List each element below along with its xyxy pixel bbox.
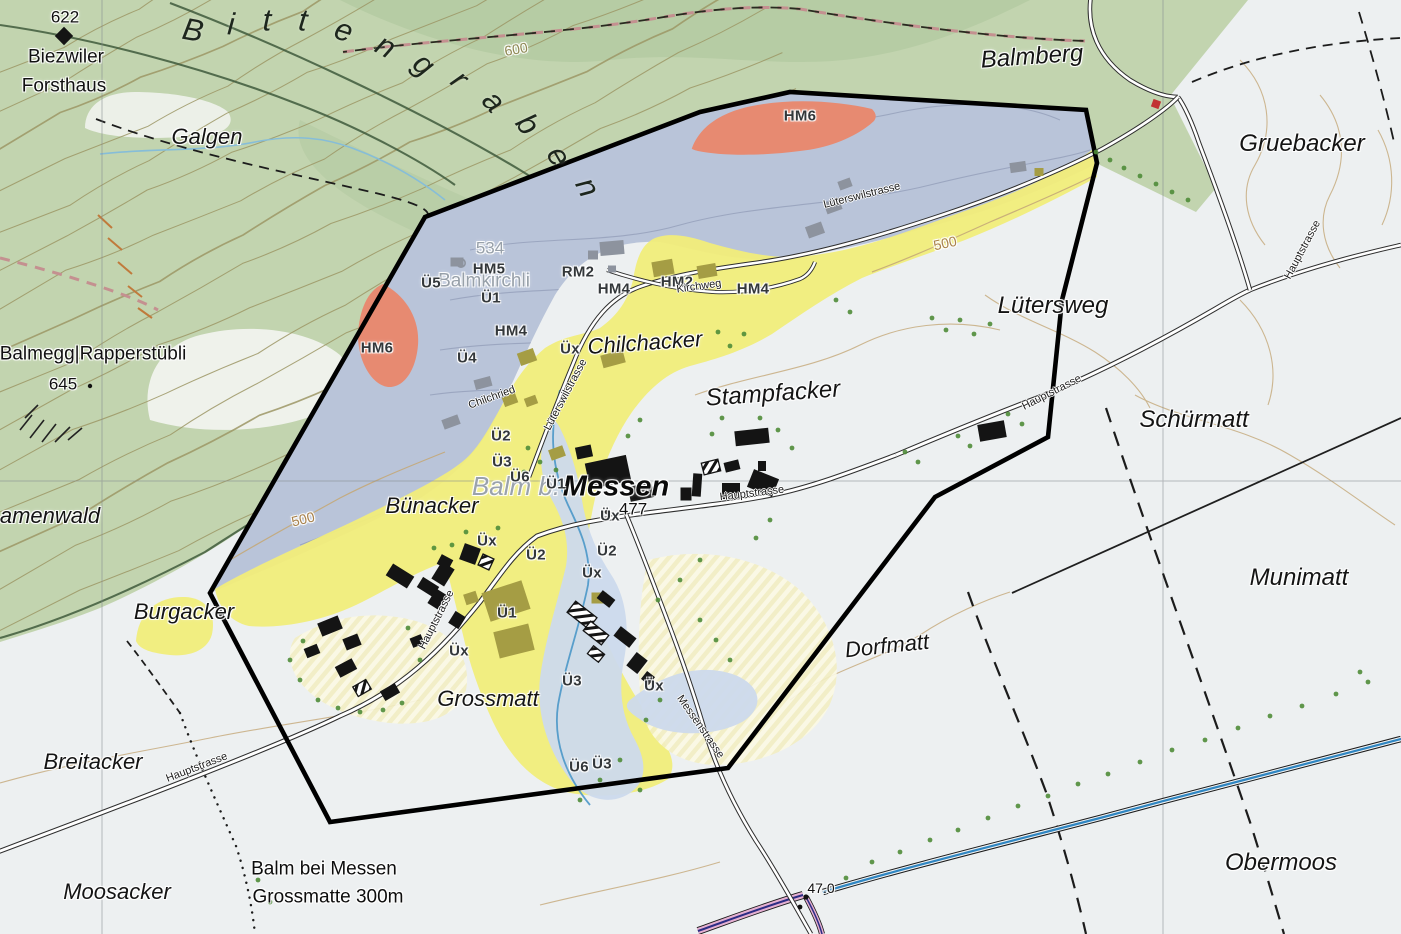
map-viewport[interactable]: GalgenBalmbergGruebackerLüterswegSchürma… [0,0,1401,934]
map-canvas [0,0,1401,934]
